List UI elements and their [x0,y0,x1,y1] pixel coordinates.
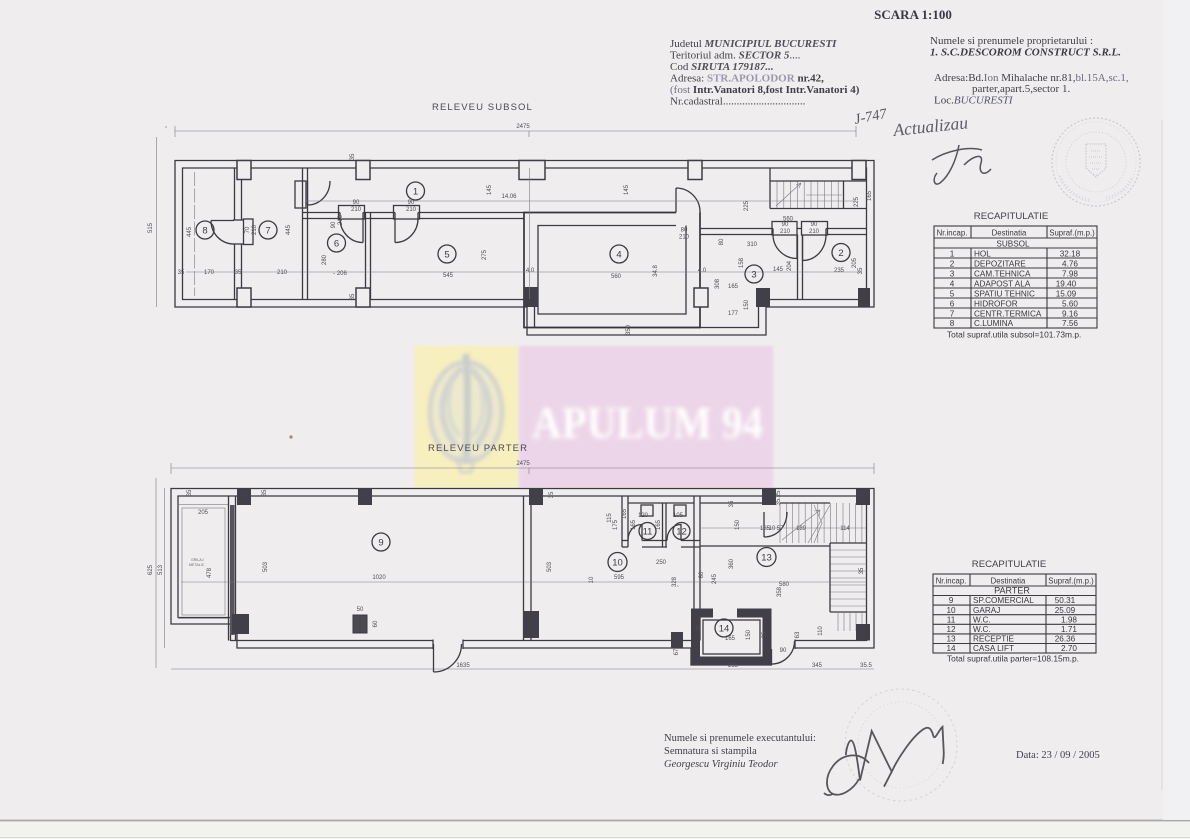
svg-text:11: 11 [643,527,653,538]
svg-text:SPATIU TEHNIC: SPATIU TEHNIC [974,290,1035,299]
svg-text:165: 165 [622,508,628,519]
svg-text:90: 90 [331,221,337,228]
svg-text:165: 165 [631,519,637,530]
svg-text:4: 4 [616,250,621,261]
svg-text:Supraf.(m.p.): Supraf.(m.p.) [1048,577,1094,586]
svg-text:35.25: 35.25 [776,490,782,506]
svg-text:W.C.: W.C. [973,615,991,624]
svg-text:205: 205 [198,510,209,516]
svg-text:Data: 23 / 09 / 2005: Data: 23 / 09 / 2005 [1016,750,1100,761]
svg-text:1.71: 1.71 [1061,625,1077,634]
svg-text:2475: 2475 [516,124,530,130]
svg-text:8: 8 [202,226,207,237]
svg-text:210: 210 [351,207,362,213]
svg-text:Numele si prenumele proprietar: Numele si prenumele proprietarului : [930,35,1093,47]
svg-text:90: 90 [782,222,789,228]
svg-text:10: 10 [589,576,595,583]
svg-text:CASA LIFT: CASA LIFT [973,644,1014,653]
svg-text:35.5: 35.5 [860,663,872,669]
svg-text:60: 60 [373,620,379,627]
svg-text:115: 115 [607,513,613,523]
svg-text:Total supraf.utila parter=108.: Total supraf.utila parter=108.15m.p. [947,654,1079,664]
svg-text:245: 245 [712,573,718,584]
svg-text:1. S.C.DESCOROM CONSTRUCT S.R.: 1. S.C.DESCOROM CONSTRUCT S.R.L. [930,47,1121,59]
svg-text:35: 35 [858,267,864,274]
svg-text:RELEVEU SUBSOL: RELEVEU SUBSOL [432,102,533,113]
svg-text:SP.COMERCIAL: SP.COMERCIAL [973,596,1034,605]
svg-text:205: 205 [852,257,858,268]
svg-text:RECEPTIE: RECEPTIE [973,635,1014,644]
svg-text:6: 6 [950,300,955,309]
svg-text:35: 35 [350,153,356,160]
svg-text:C.LUMINA: C.LUMINA [974,319,1014,328]
svg-text:250: 250 [656,560,667,566]
svg-text:503: 503 [547,561,553,572]
svg-text:HIDROFOR: HIDROFOR [974,300,1018,309]
svg-text:Actualizau: Actualizau [891,112,969,140]
svg-text:255: 255 [728,663,739,669]
svg-text:35: 35 [762,631,768,638]
svg-text:80: 80 [719,238,725,245]
svg-text:GARAJ: GARAJ [973,606,1000,615]
svg-text:90: 90 [408,200,415,206]
svg-text:7.98: 7.98 [1062,270,1078,279]
svg-text:114: 114 [840,526,850,532]
svg-text:CAM.TEHNICA: CAM.TEHNICA [974,270,1031,279]
svg-text:Loc.BUCURESTI: Loc.BUCURESTI [934,95,1014,107]
svg-text:210: 210 [679,235,690,241]
svg-text:Destinatia: Destinatia [991,577,1026,586]
svg-text:225: 225 [744,200,750,211]
svg-text:Destinatia: Destinatia [992,229,1027,238]
svg-text:10: 10 [612,558,623,569]
svg-text:Nr.incap.: Nr.incap. [937,229,968,238]
svg-text:560: 560 [611,274,622,280]
svg-text:parter,apart.5,sector 1.: parter,apart.5,sector 1. [972,83,1070,95]
svg-text:1: 1 [413,187,418,198]
svg-text:280: 280 [322,254,328,265]
svg-text:595: 595 [614,575,625,581]
svg-text:Nr.incap.: Nr.incap. [936,577,967,586]
svg-text:165: 165 [867,190,873,201]
svg-text:345: 345 [812,663,823,669]
svg-text:478: 478 [207,567,213,578]
svg-text:145: 145 [773,267,784,273]
svg-text:5: 5 [950,290,955,299]
svg-text:CENTR.TERMICA: CENTR.TERMICA [974,310,1042,319]
svg-text:Georgescu Virginiu Teodor: Georgescu Virginiu Teodor [664,759,778,770]
svg-text:7: 7 [950,310,955,319]
svg-text:9.16: 9.16 [1062,310,1078,319]
svg-text:32.18: 32.18 [1060,250,1081,259]
svg-text:35: 35 [178,270,185,276]
svg-text:35: 35 [350,293,356,300]
svg-text:4.0: 4.0 [698,268,707,274]
svg-text:50.31: 50.31 [1055,596,1076,605]
svg-text:2475: 2475 [516,461,530,467]
svg-text:120: 120 [638,513,649,519]
svg-text:APULUM 94: APULUM 94 [532,397,763,448]
svg-text:PARTER: PARTER [994,586,1030,596]
svg-text:235: 235 [834,268,845,274]
svg-text:DEPOZITARE: DEPOZITARE [974,260,1026,269]
svg-text:445: 445 [286,224,292,235]
svg-text:Adresa: STR.APOLODOR nr.42,: Adresa: STR.APOLODOR nr.42, [670,73,824,85]
svg-text:63: 63 [795,631,801,638]
svg-text:10: 10 [769,526,776,532]
svg-text:158: 158 [739,257,745,268]
svg-text:GRILAJ: GRILAJ [191,558,204,562]
svg-text:HOL: HOL [974,250,991,259]
svg-text:90: 90 [811,222,818,228]
svg-text:360: 360 [729,558,735,569]
svg-text:225: 225 [854,196,860,207]
svg-text:Teritoriul adm. SECTOR 5....: Teritoriul adm. SECTOR 5.... [670,50,801,62]
svg-text:50: 50 [357,607,364,613]
svg-text:275: 275 [482,249,488,260]
svg-text:2: 2 [838,248,843,259]
svg-text:625: 625 [148,564,154,575]
svg-text:ADAPOST ALA: ADAPOST ALA [974,280,1031,289]
svg-text:35: 35 [187,489,193,496]
svg-text:35: 35 [235,270,242,276]
svg-text:1020: 1020 [372,575,386,581]
svg-text:J-747: J-747 [853,106,889,128]
svg-text:1: 1 [950,250,955,259]
svg-text:445: 445 [187,226,193,237]
svg-text:14: 14 [719,624,730,635]
svg-text:7: 7 [265,226,270,237]
svg-text:8: 8 [950,319,955,328]
svg-text:150: 150 [735,519,741,530]
svg-text:(fost Intr.Vanatori 8,fost Int: (fost Intr.Vanatori 8,fost Intr.Vanatori… [670,84,860,96]
svg-text:515: 515 [148,222,154,233]
svg-text:RECAPITULATIE: RECAPITULATIE [974,211,1048,222]
svg-text:4.0: 4.0 [526,268,535,274]
svg-text:35: 35 [262,489,268,496]
svg-text:350: 350 [626,324,632,335]
svg-text:3: 3 [751,270,756,281]
svg-text:9: 9 [949,596,954,605]
svg-text:5.60: 5.60 [1062,300,1078,309]
svg-text:3: 3 [950,270,955,279]
svg-text:Semnatura si stampila: Semnatura si stampila [664,746,757,757]
svg-text:14.06: 14.06 [501,194,517,200]
svg-text:70: 70 [245,226,251,233]
svg-text:Cod SIRUTA 179187...: Cod SIRUTA 179187... [670,61,774,73]
svg-text:210: 210 [780,229,791,235]
svg-text:110: 110 [818,626,824,636]
svg-text:189: 189 [796,526,807,532]
svg-text:4: 4 [950,280,955,289]
svg-text:15.09: 15.09 [1056,290,1077,299]
svg-text:35: 35 [859,567,865,574]
svg-text:105: 105 [673,513,684,519]
svg-text:Numele si prenumele executantu: Numele si prenumele executantului: [664,733,816,744]
svg-text:308: 308 [715,278,721,289]
svg-text:2.70: 2.70 [1061,644,1077,653]
svg-text:11: 11 [947,615,956,624]
svg-text:210: 210 [406,207,417,213]
svg-text:503: 503 [263,561,269,572]
svg-text:14: 14 [946,644,956,653]
svg-text:26.36: 26.36 [1055,635,1076,644]
svg-text:170: 170 [204,270,215,276]
svg-text:19.40: 19.40 [1056,280,1077,289]
svg-text:204: 204 [787,260,793,271]
svg-text:57: 57 [777,526,784,532]
svg-text:SUBSOL: SUBSOL [996,240,1030,249]
svg-text:80: 80 [699,571,705,578]
svg-text:177: 177 [728,311,739,317]
svg-text:Total supraf.utila subsol=101.: Total supraf.utila subsol=101.73m.p. [947,330,1081,340]
svg-text:6: 6 [334,239,339,250]
svg-text:30: 30 [696,624,702,631]
svg-text:Supraf.(m.p.): Supraf.(m.p.) [1049,229,1095,238]
svg-text:175: 175 [613,519,619,530]
svg-text:210: 210 [252,224,258,235]
svg-text:METALIC: METALIC [189,563,205,567]
svg-text:80: 80 [681,228,688,234]
svg-text:150: 150 [746,629,752,640]
svg-text:SCARA 1:100: SCARA 1:100 [874,7,952,22]
svg-text:145: 145 [624,184,630,195]
svg-text:4.76: 4.76 [1062,260,1078,269]
svg-text:165: 165 [725,636,736,642]
svg-text:150: 150 [744,299,750,310]
svg-text:90: 90 [780,648,787,654]
svg-text:9: 9 [378,538,383,549]
svg-text:210: 210 [809,229,820,235]
svg-text:7.56: 7.56 [1062,319,1078,328]
svg-text:2: 2 [950,260,955,269]
svg-text:13: 13 [761,553,772,564]
svg-text:90: 90 [353,200,360,206]
svg-text:12: 12 [676,527,687,538]
svg-text:13: 13 [946,635,956,644]
svg-text:34.8: 34.8 [653,265,659,277]
svg-text:35: 35 [729,500,735,507]
svg-text:35: 35 [549,491,555,498]
svg-text:1635: 1635 [456,663,470,669]
svg-text:10: 10 [946,606,956,615]
svg-text:310: 310 [747,242,758,248]
svg-text:25.09: 25.09 [1055,606,1076,615]
svg-text:358: 358 [777,586,783,597]
svg-text:513: 513 [158,564,164,575]
svg-text:RELEVEU PARTER: RELEVEU PARTER [428,443,528,454]
svg-text:545: 545 [443,273,454,279]
svg-text:145: 145 [487,184,493,195]
svg-text:12: 12 [946,625,956,634]
svg-text:328: 328 [672,576,678,587]
svg-text:RECAPITULATIE: RECAPITULATIE [972,559,1046,570]
svg-text:Nr.cadastral..................: Nr.cadastral............................… [670,96,806,108]
svg-text:Judetul MUNICIPIUL BUCURESTI: Judetul MUNICIPIUL BUCURESTI [670,38,837,50]
svg-text:5: 5 [444,250,449,261]
svg-text:210: 210 [338,214,344,225]
svg-text:1.98: 1.98 [1061,615,1077,624]
svg-text:165: 165 [656,519,662,530]
svg-text:210: 210 [277,270,288,276]
svg-text:- 206: - 206 [333,271,347,277]
svg-text:67: 67 [674,648,680,655]
svg-text:165: 165 [728,284,739,290]
svg-text:W.C.: W.C. [973,625,991,634]
